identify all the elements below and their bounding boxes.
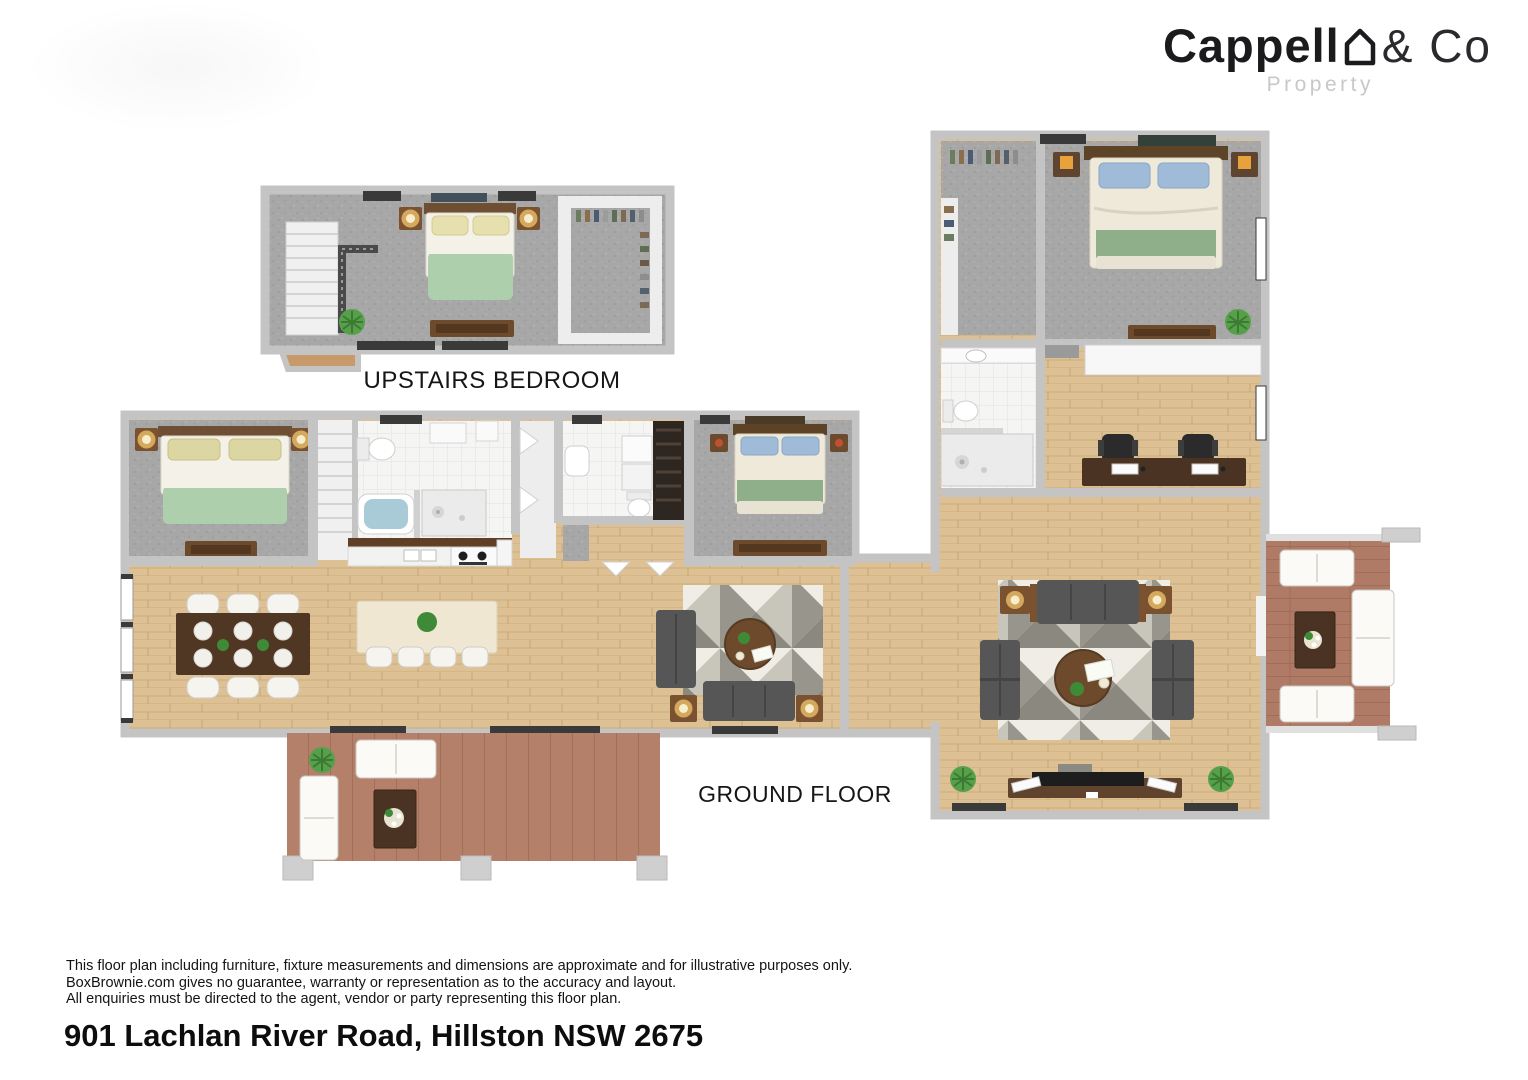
ground-floor-label: GROUND FLOOR	[690, 781, 900, 808]
window	[357, 341, 435, 350]
side-table-lamp	[670, 695, 697, 722]
bedroom2-nightstand-left	[135, 428, 158, 451]
side-table-lamp	[1000, 586, 1030, 614]
ground-floor-left-wing	[121, 415, 942, 734]
floor-mat	[1045, 345, 1079, 358]
plant	[1225, 309, 1251, 335]
window	[1184, 803, 1238, 811]
deck-post	[1382, 528, 1420, 542]
upstairs-walkin-closet	[558, 196, 662, 344]
island-stool	[366, 647, 392, 667]
upstairs-bed	[424, 203, 516, 300]
corridor-opening	[926, 572, 944, 722]
right-deck	[1266, 528, 1420, 740]
coffee-table	[725, 619, 775, 669]
ensuite-vanity	[941, 348, 1036, 363]
window	[712, 726, 778, 734]
ground-floor-right-wing	[926, 134, 1266, 815]
logo-text-light: & Co	[1382, 23, 1492, 69]
dining-windows	[121, 574, 133, 723]
wall-art	[745, 416, 805, 425]
wall-art	[431, 193, 487, 202]
window	[572, 415, 602, 424]
stove	[451, 547, 497, 566]
office-chair	[1098, 434, 1138, 462]
window	[442, 341, 508, 350]
disclaimer-line-1: This floor plan including furniture, fix…	[66, 958, 852, 975]
sofa	[980, 640, 1020, 720]
master-dresser	[1128, 325, 1216, 340]
side-table-lamp	[796, 695, 823, 722]
side-table-lamp	[1142, 586, 1172, 614]
master-nightstand-left	[1053, 152, 1080, 177]
deck-post	[461, 856, 491, 880]
bedroom3-dresser	[733, 540, 827, 556]
plant	[339, 309, 365, 335]
bedroom2-dresser	[185, 541, 257, 558]
bedroom-3	[694, 415, 852, 563]
upstairs-unit	[265, 190, 670, 369]
master-nightstand-right	[1231, 152, 1258, 177]
brand-logo: Cappell & Co Property	[1163, 22, 1492, 97]
sofa	[703, 681, 795, 721]
kitchen-bench	[348, 538, 512, 547]
disclaimer-text: This floor plan including furniture, fix…	[66, 958, 852, 1008]
kitchen-sink	[404, 550, 419, 561]
upstairs-nightstand-left	[399, 207, 422, 230]
front-deck	[283, 733, 667, 880]
bedroom2-bed	[158, 426, 292, 524]
disclaimer-line-2: BoxBrownie.com gives no guarantee, warra…	[66, 975, 852, 992]
sofa	[1152, 640, 1194, 720]
shower	[422, 490, 486, 536]
window	[490, 726, 600, 734]
window	[363, 191, 401, 201]
house-outline-icon	[1341, 26, 1379, 68]
upstairs-desk	[430, 320, 514, 337]
window	[380, 415, 422, 424]
window	[330, 726, 406, 734]
fridge	[497, 540, 512, 566]
window	[1040, 134, 1086, 144]
ensuite	[941, 348, 1036, 488]
window	[1256, 218, 1266, 280]
corridor-wall	[840, 565, 849, 733]
outdoor-table	[374, 790, 416, 848]
bedroom3-nightstand-right	[830, 434, 848, 452]
disclaimer-line-3: All enquiries must be directed to the ag…	[66, 991, 852, 1008]
office-desk	[1082, 458, 1246, 486]
centerpiece-plant	[217, 639, 229, 651]
toilet	[627, 492, 651, 517]
window	[952, 803, 1006, 811]
bathroom	[357, 415, 512, 538]
toilet	[943, 400, 978, 422]
laptop	[1192, 464, 1218, 474]
window	[498, 191, 536, 201]
upstairs-nightstand-right	[517, 207, 540, 230]
walk-in-robe	[941, 141, 1036, 335]
dining-set	[176, 594, 310, 698]
wall-art	[1138, 135, 1216, 147]
bathtub	[358, 494, 414, 534]
outdoor-table	[1295, 612, 1335, 668]
upstairs-floor-label: UPSTAIRS BEDROOM	[332, 367, 652, 395]
office-builtin-cabinet	[1085, 345, 1261, 375]
plant	[1208, 766, 1234, 792]
logo-text-bold: Cappell	[1163, 22, 1340, 69]
deck-post	[1378, 726, 1416, 740]
master-bedroom	[1040, 134, 1266, 340]
laundry-tub	[565, 446, 589, 476]
floorplan-drawing	[0, 0, 1528, 1080]
deck-door	[1256, 596, 1266, 656]
robe-shelving	[941, 198, 958, 335]
logo-subtitle: Property	[1163, 73, 1492, 97]
sofa	[1030, 580, 1146, 624]
shower	[941, 434, 1033, 486]
toilet	[357, 438, 395, 460]
laptop	[1112, 464, 1138, 474]
floorplan-page: Cappell & Co Property UPSTAIRS BEDROOM G…	[0, 0, 1528, 1080]
plant	[309, 747, 335, 773]
dining-chair	[187, 594, 219, 615]
window	[700, 415, 730, 424]
bedroom3-bed	[733, 424, 827, 514]
bathroom-cabinet	[476, 421, 498, 441]
plant	[950, 766, 976, 792]
window	[1256, 386, 1266, 440]
bedroom-2	[129, 420, 311, 560]
hallway-linen	[520, 421, 556, 558]
kitchen	[348, 538, 512, 566]
centerpiece-plant	[417, 612, 437, 632]
office-chair	[1178, 434, 1218, 462]
property-address: 901 Lachlan River Road, Hillston NSW 267…	[64, 1018, 703, 1054]
sink	[966, 350, 986, 362]
bedroom3-nightstand-left	[710, 434, 728, 452]
deck-post	[637, 856, 667, 880]
master-bed	[1084, 146, 1228, 269]
bathroom-vanity	[430, 423, 466, 443]
